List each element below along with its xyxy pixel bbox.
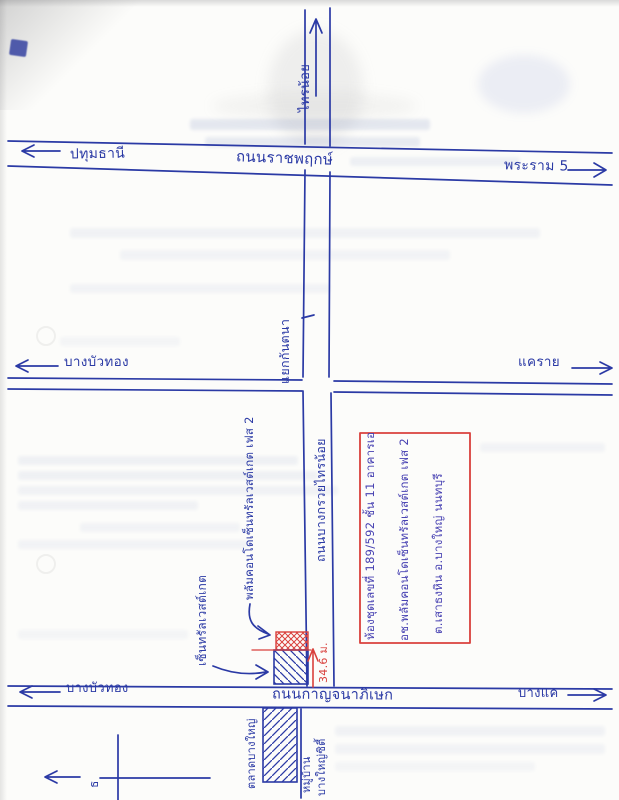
label-pathumthani: ปทุมธานี [70,147,125,163]
arrow-pointer-westgate [213,665,268,679]
label-rama5: พระราม 5 [504,158,569,175]
arrow-left-inset [45,771,80,783]
label-ratchaphruek-name: ถนนราชพฤกษ์ [236,148,334,168]
label-bangkruai-sainoi-name: ถนนบางกรวยไทรน้อย [314,438,328,562]
arrow-right-rama5 [568,163,606,177]
info-box-line2: อช.พลัมคอนโดเซ็นทรัลเวสต์เกต เฟส 2 [398,438,411,641]
central-westgate-hatched [274,650,308,684]
info-box-line1: ห้องชุดเลขที่ 189/592 ชั้น 11 อาคารเอ [364,432,377,640]
arrow-right-bangkhae [568,689,606,701]
label-village-line2: บางใหญ่ซิตี้ [316,738,328,796]
road-rattanathibet [8,378,612,395]
label-plum-condo: พลัมคอนโดเซ็นทรัลเวสต์เกต เฟส 2 [243,416,256,600]
label-inset-glyph: ธ [88,780,101,788]
label-khaerai: แคราย [518,355,560,370]
info-box-line3: ต.เสาธงหิน อ.บางใหญ่ นนทบุรี [432,473,445,634]
label-market: ตลาดบางใหญ่ [246,718,258,789]
arrow-left-bangbuathong-mid [16,360,58,372]
market-hatched [263,708,297,782]
label-bangbuathong-bottom: บางบัวทอง [66,682,129,696]
label-bangkhae: บางแค [518,687,558,701]
condo-site-hatched [276,632,308,650]
label-village-line1: หมู่บ้าน [301,756,313,793]
label-kanchanaphisek-name: ถนนกาญจนาภิเษก [272,687,393,704]
road-bangkruai-sainoi-upper [303,170,330,377]
arrow-pointer-condo [249,604,270,639]
arrow-right-khaerai [572,362,612,374]
map-linework [0,0,619,800]
label-sainoi: ไทรน้อย [299,64,313,112]
label-kantana-junction: แยกกันตนา [278,319,292,384]
label-bangbuathong-mid: บางบัวทอง [64,355,129,370]
arrow-left-pathumthani [22,145,60,157]
inset-cross-roads [100,735,210,800]
arrow-left-bangbuathong-bottom [20,686,60,698]
label-central-westgate: เซ็นทรัลเวสต์เกต [196,575,209,666]
label-distance-measure: 34.6 ม. [318,642,330,683]
scanned-map-page: ปทุมธานี ถนนราชพฤกษ์ พระราม 5 บางบัวทอง … [0,0,619,800]
